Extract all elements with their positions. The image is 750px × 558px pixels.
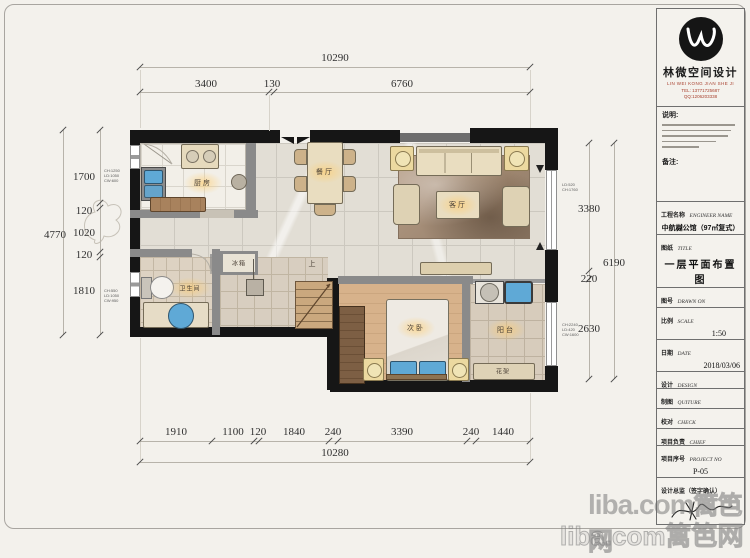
wall-right-b <box>545 250 558 302</box>
field-label: 校对 <box>661 420 673 426</box>
field-drawing-title: 图纸 TITLE 一层平面布置图 <box>657 234 744 287</box>
partition-bathroom-top <box>130 249 192 257</box>
tv-cabinet <box>420 262 492 275</box>
dim-tick <box>59 331 66 338</box>
dim-right-seg: 220 <box>581 273 598 285</box>
wall-left-a <box>130 130 140 145</box>
note-line <box>662 141 716 143</box>
kitchen-pot <box>231 174 247 190</box>
dim-tick <box>526 458 533 465</box>
field-label: 工程名称 <box>661 213 685 219</box>
brand-qq: QQ:1206203338 <box>657 94 744 100</box>
dim-line-bottom-total <box>140 462 530 463</box>
dim-right-total: 6190 <box>603 257 625 269</box>
dim-bottom-total: 10280 <box>321 447 349 459</box>
dim-line-top-segments <box>140 92 530 93</box>
remarks-section: 备注: <box>657 155 744 202</box>
room-label-flower-rack: 花架 <box>496 367 510 376</box>
dim-bottom-seg: 1440 <box>492 426 514 438</box>
burner-left <box>186 150 199 163</box>
field-value: 一层平面布置图 <box>661 256 740 286</box>
window-spec-note: CH:550 LD:1050 CW:950 <box>104 288 119 303</box>
dim-bottom-seg: 240 <box>325 426 342 438</box>
window-right-balcony <box>546 302 557 366</box>
field-project-no: 项目序号 PROJECT NO P-05 <box>657 445 744 477</box>
field-label-en: QUITURE <box>677 400 701 406</box>
washer-drum <box>480 283 499 302</box>
dining-chair <box>343 149 356 165</box>
field-project-name: 工程名称 ENGINEER NAME 中航樾公馆（97㎡复式） <box>657 201 744 234</box>
field-label: 制图 <box>661 400 673 406</box>
note-line <box>662 130 731 132</box>
dim-bottom-seg: 1100 <box>222 426 244 438</box>
field-label-en: DATE <box>677 351 691 357</box>
field-label: 日期 <box>661 351 673 357</box>
sofa <box>416 146 502 176</box>
dining-chair <box>343 176 356 192</box>
window-top-living <box>400 133 470 142</box>
room-label-living: 客厅 <box>439 194 477 216</box>
dim-bottom-seg: 120 <box>250 426 267 438</box>
field-label-en: SCALE <box>677 319 693 325</box>
extension-line <box>530 70 531 128</box>
dim-tick <box>610 375 617 382</box>
room-label-dining: 餐厅 <box>306 161 344 183</box>
dim-right-seg: 3380 <box>578 203 600 215</box>
field-value: P-05 <box>661 467 740 476</box>
field-label: 设计总监（签字确认） <box>661 489 721 495</box>
dim-left-total: 4770 <box>44 229 66 241</box>
window-spec-note: CH:1250 LD:1050 CW:600 <box>104 168 120 183</box>
extension-line <box>140 70 141 128</box>
room-label-bathroom: 卫生间 <box>169 278 210 299</box>
dim-top-total: 10290 <box>321 52 349 64</box>
sink-basin-top <box>144 170 163 184</box>
room-label-bedroom: 次卧 <box>397 317 435 339</box>
water-heater <box>246 279 264 296</box>
balcony-sink <box>504 281 533 304</box>
lamp-icon <box>395 151 411 167</box>
dim-top-seg: 6760 <box>391 78 413 90</box>
armchair-left <box>393 184 420 225</box>
dim-bottom-seg: 3390 <box>391 426 413 438</box>
bathroom-basin <box>168 303 194 329</box>
partition-kitchen-dining <box>246 143 256 210</box>
lamp-icon <box>452 363 467 378</box>
note-line <box>662 124 735 126</box>
window-left-kitchen <box>130 145 140 169</box>
spec-line: CW:600 <box>104 178 120 183</box>
stairs-up-label: 上 <box>309 259 318 269</box>
dim-left-seg: 1810 <box>73 285 95 297</box>
field-label: 项目序号 <box>661 457 685 463</box>
headboard <box>386 374 447 380</box>
logo-block: 林微空间设计 LIN WEI KONG JIAN SHE JI TEL: 137… <box>657 9 744 100</box>
wall-top-a <box>130 130 280 143</box>
extension-line <box>530 393 531 460</box>
sofa-cushions <box>419 149 499 173</box>
dim-top-seg: 130 <box>264 78 281 90</box>
window-left-bathroom <box>130 272 140 297</box>
partition-living-bedroom <box>338 276 473 284</box>
title-block: 林微空间设计 LIN WEI KONG JIAN SHE JI TEL: 137… <box>656 8 745 525</box>
notes-section: 说明: <box>657 106 744 155</box>
field-value: 2018/03/06 <box>661 361 740 370</box>
window-spec-note: LD:520 CH:1760 <box>562 182 578 192</box>
wall-right-a <box>545 140 558 170</box>
notes-heading: 说明: <box>662 110 739 120</box>
field-label: 比例 <box>661 319 673 325</box>
field-label-en: ENGINEER NAME <box>689 213 732 219</box>
lamp-icon <box>509 151 525 167</box>
spec-line: CH:1760 <box>562 187 578 192</box>
lamp-icon <box>367 363 382 378</box>
dining-chair <box>314 204 336 216</box>
water-heater-cord <box>253 259 254 279</box>
field-date: 日期 DATE 2018/03/06 <box>657 339 744 371</box>
field-draft: 制图 QUITURE <box>657 388 744 408</box>
field-label-en: TITLE <box>677 246 691 252</box>
floorplan-sheet: { "logo": { "brand_cn": "林微空间设计", "brand… <box>0 0 750 533</box>
spec-line: CW:950 <box>104 298 119 303</box>
room-label-fridge: 冰箱 <box>232 259 246 268</box>
brand-name-cn: 林微空间设计 <box>657 64 744 80</box>
dim-left-seg: 1700 <box>73 171 95 183</box>
burner-right <box>203 150 216 163</box>
field-scale: 比例 SCALE 1:50 <box>657 307 744 339</box>
brand-name-en: LIN WEI KONG JIAN SHE JI <box>657 81 744 86</box>
field-check: 校对 CHECK <box>657 408 744 428</box>
field-label: 图纸 <box>661 246 673 252</box>
dim-left-seg: 120 <box>76 205 93 217</box>
field-label-en: PROJECT NO <box>689 457 721 463</box>
partition-bathroom-right <box>212 249 220 335</box>
note-line <box>662 135 728 137</box>
dim-bottom-seg: 1910 <box>165 426 187 438</box>
dim-bottom-seg: 240 <box>463 426 480 438</box>
dim-top-seg: 3400 <box>195 78 217 90</box>
window-right-living <box>546 170 557 250</box>
staircase <box>295 281 333 329</box>
note-line <box>662 146 699 148</box>
dim-line-left-segments <box>100 130 101 335</box>
room-label-kitchen: 厨房 <box>184 172 222 194</box>
room-label-balcony: 阳台 <box>487 319 525 341</box>
field-value: 中航樾公馆（97㎡复式） <box>661 223 740 233</box>
field-label: 图号 <box>661 299 673 305</box>
kitchen-counter <box>150 197 206 212</box>
field-value: 1:50 <box>661 329 740 338</box>
window-spec-note: CH:2240 LD:420 CW:1600 <box>562 322 579 337</box>
dim-line-top-total <box>140 67 530 68</box>
remarks-heading: 备注: <box>662 157 739 167</box>
field-drawn-on: 图号 DRAWN ON <box>657 287 744 307</box>
dim-left-seg: 1020 <box>73 227 95 239</box>
field-label-en: CHECK <box>677 420 695 426</box>
signature-scribble <box>666 499 736 523</box>
field-chief: 项目负责 CHIEF <box>657 428 744 445</box>
extension-line <box>269 95 270 131</box>
dim-line-right-segments <box>589 143 590 379</box>
field-design: 设计 DESIGN <box>657 371 744 388</box>
lw-logo-icon <box>679 17 723 61</box>
spec-line: CW:1600 <box>562 332 579 337</box>
floorplan: 厨房 餐厅 客厅 卫生间 冰箱 次卧 阳台 花架 上 CH:1250 LD:10… <box>0 0 750 533</box>
armchair-right <box>502 186 530 227</box>
wardrobe <box>339 306 365 384</box>
dim-bottom-seg: 1840 <box>283 426 305 438</box>
dim-tick <box>96 331 103 338</box>
dim-tick <box>585 375 592 382</box>
field-signature: 设计总监（签字确认） <box>657 477 744 524</box>
field-label-en: DRAWN ON <box>677 299 705 305</box>
dim-right-seg: 2630 <box>578 323 600 335</box>
dim-left-seg: 120 <box>76 249 93 261</box>
